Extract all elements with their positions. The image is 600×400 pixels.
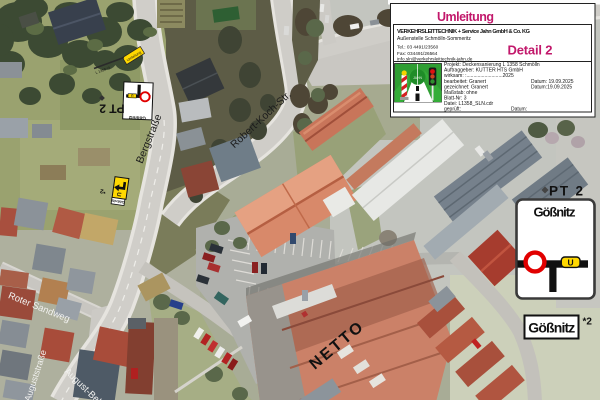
svg-text:Fax: 034491/26564: Fax: 034491/26564 [397, 51, 438, 56]
svg-text:geprüft:: geprüft: [444, 107, 461, 113]
svg-text:Gößnitz: Gößnitz [128, 115, 146, 121]
svg-text:Umleitung: Umleitung [437, 10, 494, 24]
svg-text:Außenstelle Schmölln-Sommeritz: Außenstelle Schmölln-Sommeritz [397, 36, 471, 42]
svg-text:info.sln@verkehrsleittechnik-j: info.sln@verkehrsleittechnik-jahn.de [397, 57, 473, 62]
svg-text:VERKEHRSLEITTECHNIK + Service: VERKEHRSLEITTECHNIK + Service Jahn GmbH … [397, 29, 530, 35]
svg-text:Tel.: 03 4491/23560: Tel.: 03 4491/23560 [397, 45, 439, 50]
svg-text:U: U [115, 192, 122, 197]
svg-text:Datum:19.09.2025: Datum:19.09.2025 [531, 85, 572, 91]
svg-text:JAHN: JAHN [413, 76, 422, 80]
svg-text:Gößnitz: Gößnitz [534, 205, 577, 220]
svg-text:*2: *2 [583, 317, 593, 328]
svg-text:Detail 2: Detail 2 [508, 43, 553, 58]
svg-text:U: U [568, 258, 574, 268]
svg-text:PT 2: PT 2 [99, 101, 125, 115]
svg-text:Datum:: Datum: [511, 107, 527, 113]
svg-text:PT 2: PT 2 [549, 184, 583, 199]
svg-text:Gößnitz: Gößnitz [528, 320, 575, 336]
